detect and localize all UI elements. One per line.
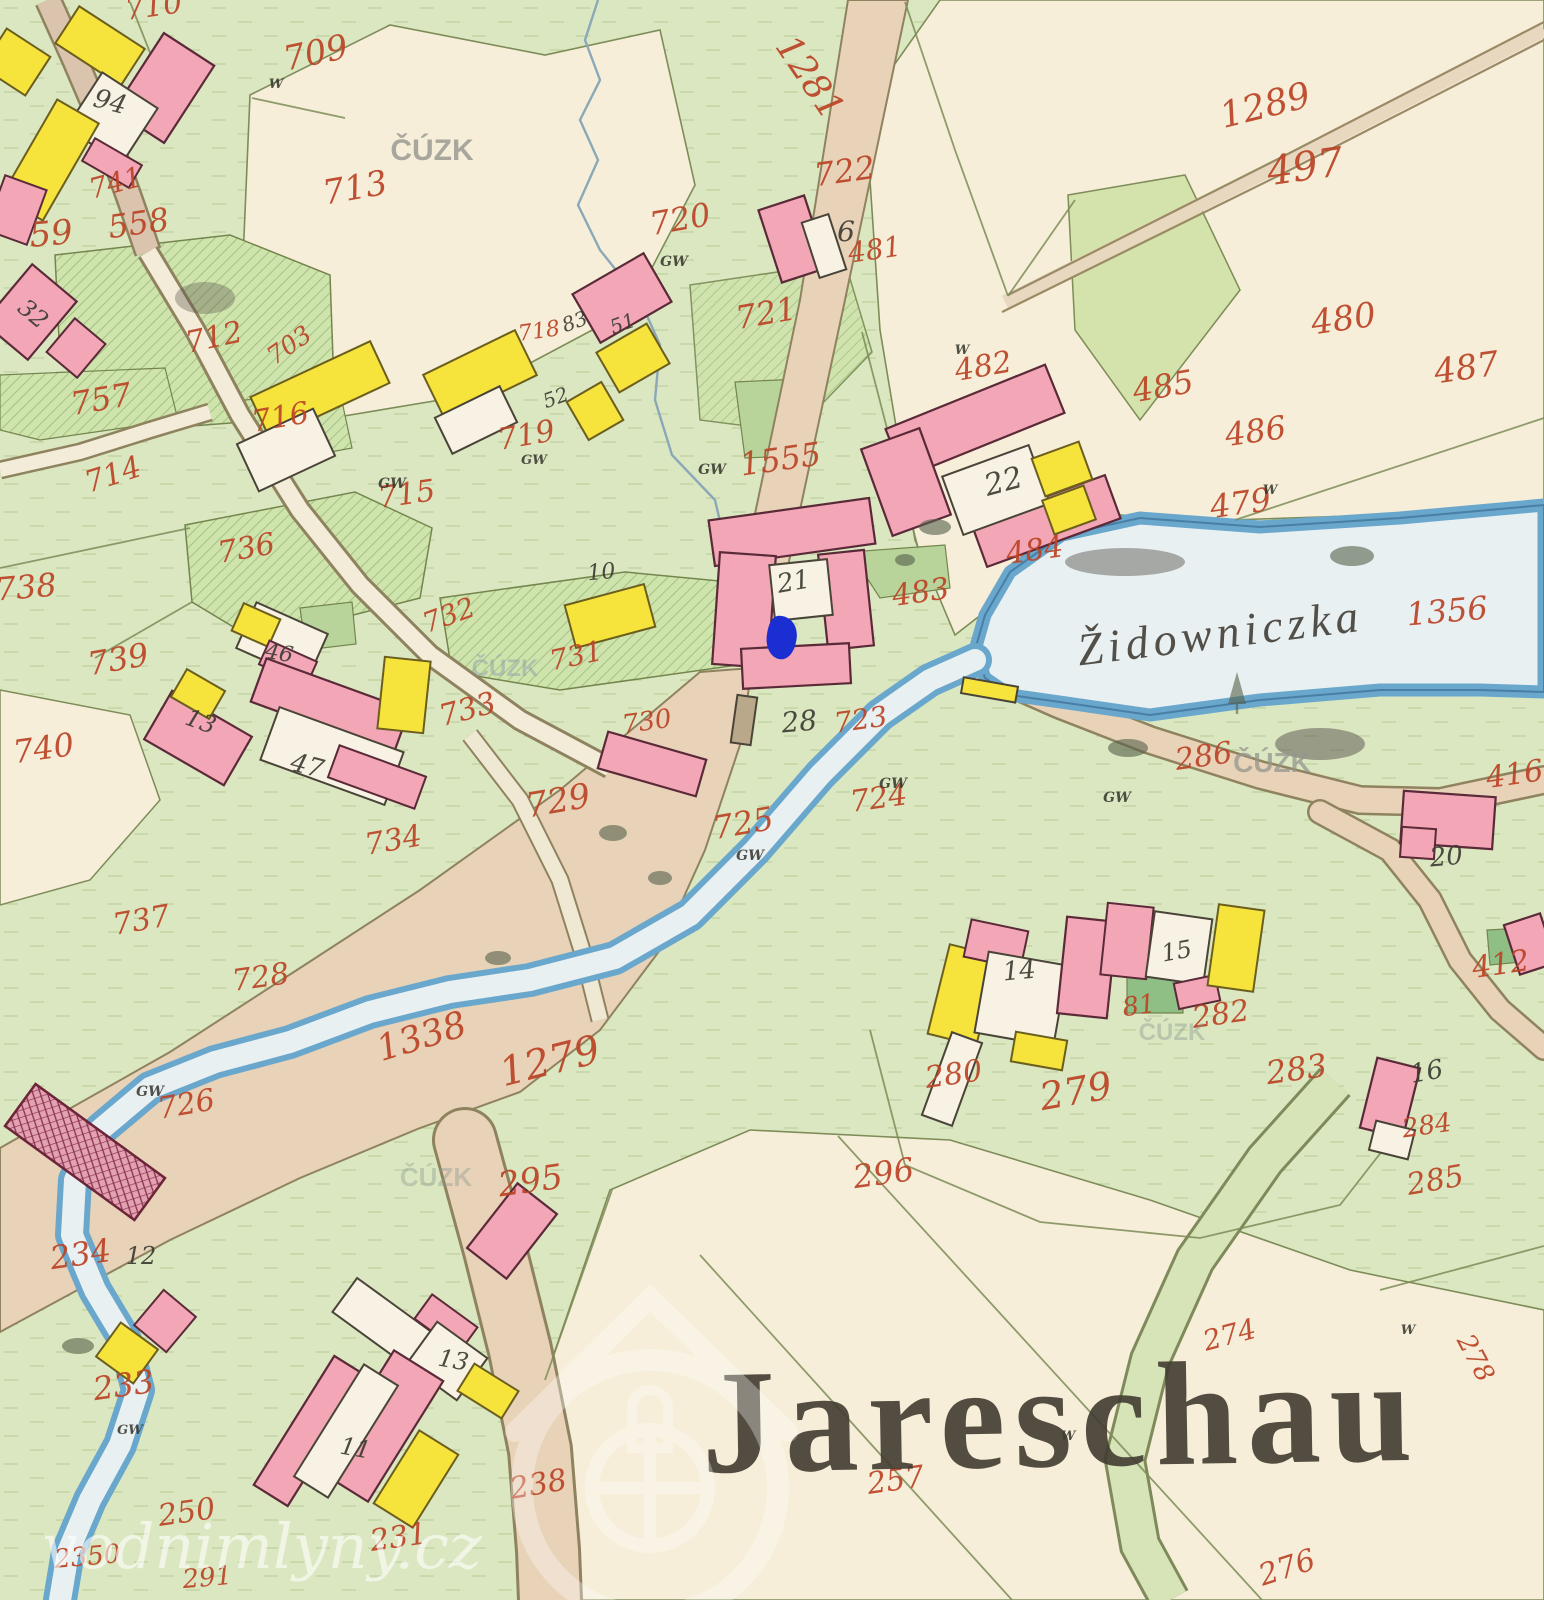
land-use-annotation: GW (117, 1423, 144, 1438)
cuzk-watermark: ČÚZK (472, 654, 539, 682)
cuzk-watermark: ČÚZK (400, 1162, 472, 1192)
land-use-annotation: GW (736, 848, 765, 864)
land-use-annotation: GW (698, 462, 727, 478)
vodnimlyny-watermark: vodnimlyny.cz (42, 1510, 482, 1583)
building-number: 28 (779, 704, 818, 740)
building-number: 15 (1159, 935, 1194, 968)
building-number: 46 (262, 639, 295, 669)
building-number: 20 (1428, 841, 1465, 874)
land-use-annotation: W (955, 343, 971, 358)
building-number: 10 (586, 559, 616, 586)
building-number: 6 (837, 215, 855, 248)
land-use-annotation: GW (521, 453, 548, 468)
cuzk-watermark: ČÚZK (1233, 746, 1311, 778)
land-use-annotation: GW (136, 1084, 165, 1100)
building-masonry (1100, 903, 1153, 979)
parcel-number: 1356 (1405, 589, 1489, 634)
building-number: 16 (1408, 1054, 1446, 1089)
land-use-annotation: GW (1103, 790, 1132, 806)
building-wood (377, 657, 430, 733)
land-use-annotation: GW (378, 476, 407, 492)
building-number: 12 (126, 1242, 157, 1270)
parcel-number: 738 (0, 565, 58, 608)
land-use-annotation: W (269, 77, 285, 92)
building-number: 13 (436, 1344, 471, 1377)
land-use-annotation: W (1263, 483, 1279, 498)
map-canvas: 7107097417135585971270375771671571473673… (0, 0, 1544, 1600)
land-use-annotation: GW (660, 254, 689, 270)
building-number: 14 (1002, 955, 1038, 988)
land-use-annotation: GW (879, 776, 908, 792)
cuzk-watermark: ČÚZK (1139, 1018, 1206, 1046)
building-number: 11 (338, 1432, 373, 1465)
place-title-label: Jareschau (700, 1329, 1422, 1506)
historical-cadastral-map[interactable]: 7107097417135585971270375771671571473673… (0, 0, 1544, 1600)
parcel-number: 59 (28, 212, 75, 256)
building-masonry-mill (741, 643, 851, 689)
cuzk-watermark: ČÚZK (390, 133, 474, 167)
building-number: 21 (774, 564, 813, 599)
